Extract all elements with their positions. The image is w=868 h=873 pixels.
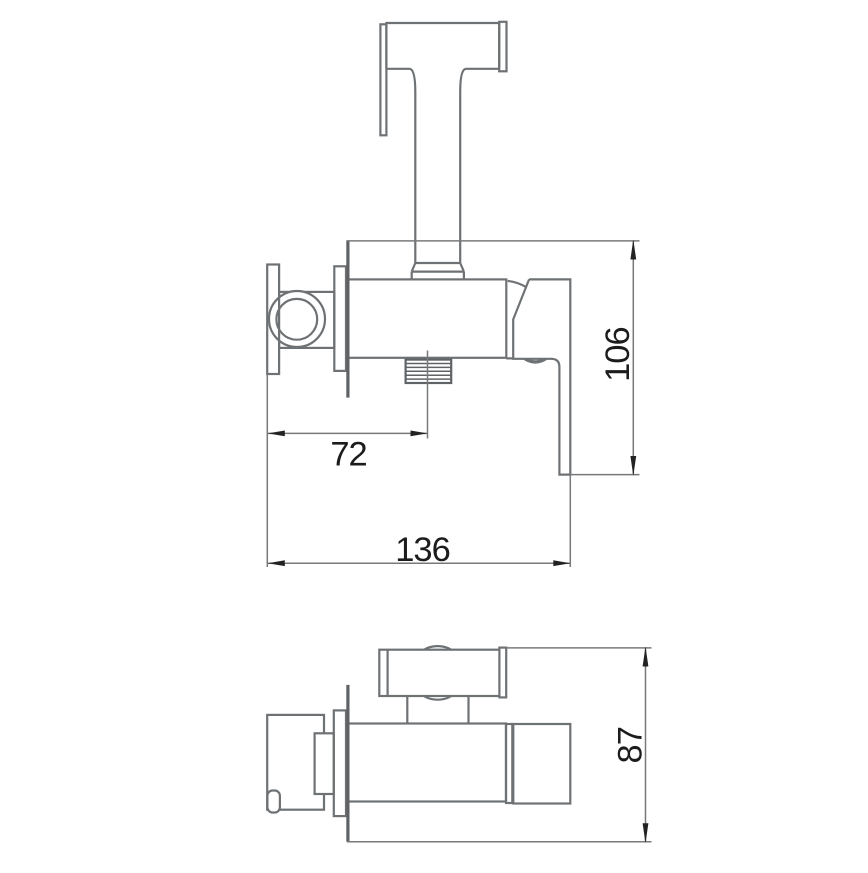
svg-text:106: 106 xyxy=(599,327,637,382)
svg-text:87: 87 xyxy=(611,727,649,763)
svg-text:136: 136 xyxy=(395,531,450,569)
svg-text:72: 72 xyxy=(330,436,366,474)
